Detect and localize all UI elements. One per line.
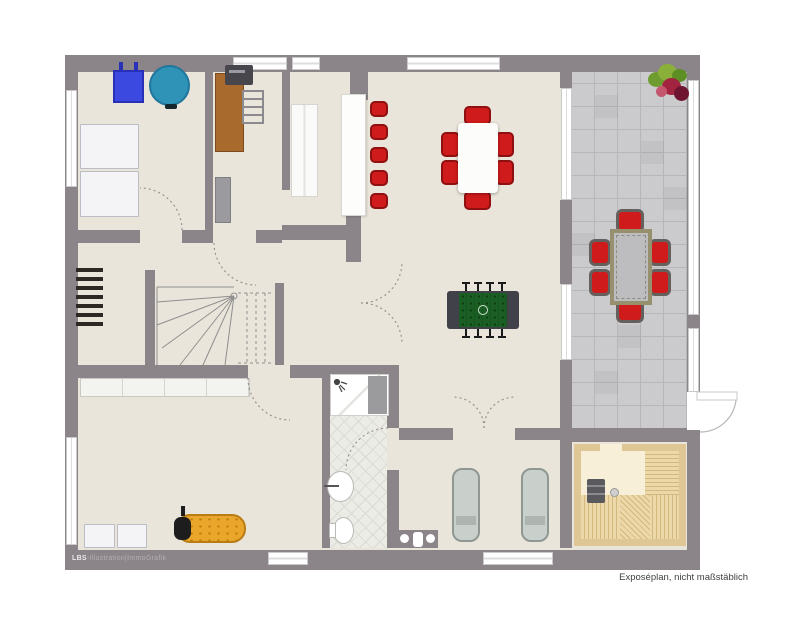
bar-stool — [370, 193, 388, 209]
patio-chair — [649, 269, 671, 296]
patio-chair — [649, 239, 671, 266]
wall — [560, 200, 572, 284]
kitchen-counter — [291, 104, 318, 197]
wall — [515, 428, 560, 440]
terrace-tile-dark — [595, 95, 618, 118]
wall — [322, 365, 330, 548]
sauna-door-gap — [600, 444, 622, 451]
storage-box — [80, 124, 139, 169]
wall — [145, 270, 155, 365]
window — [407, 57, 500, 70]
bar-stool — [370, 147, 388, 163]
window — [66, 437, 77, 545]
lounger-band — [525, 516, 545, 525]
credit-text: -Illustration|ImmoGrafik — [87, 555, 166, 562]
sauna-bucket — [610, 488, 619, 497]
dining-table — [458, 123, 498, 193]
wall — [256, 230, 282, 243]
lounger — [452, 468, 480, 542]
massage-lounger-knob — [181, 506, 185, 516]
lounger — [521, 468, 549, 542]
wall — [65, 230, 140, 243]
wall — [560, 360, 572, 548]
patio-table-inlay — [616, 235, 646, 299]
sink — [327, 471, 354, 502]
wall — [560, 428, 700, 442]
storage-box — [117, 524, 147, 548]
gym-ball — [149, 65, 190, 106]
window — [561, 88, 572, 200]
storage-box — [80, 171, 139, 217]
printer — [225, 65, 253, 85]
wall — [282, 72, 290, 190]
fixture-dot — [400, 534, 409, 543]
bar-stool — [370, 170, 388, 186]
window — [688, 80, 699, 315]
floor-plan-page: LBS-Illustration|ImmoGrafik Exposéplan, … — [0, 0, 794, 630]
window — [483, 552, 553, 565]
printer-detail — [229, 70, 245, 73]
terrace-tile-dark — [664, 187, 687, 210]
wall — [560, 72, 572, 88]
patio-chair — [589, 239, 611, 266]
wall — [282, 225, 346, 240]
plant-flower — [674, 86, 689, 101]
exercise-box — [113, 70, 144, 103]
plant-flower — [656, 86, 667, 97]
wall — [275, 283, 284, 365]
terrace-tile-dark — [641, 141, 664, 164]
window — [688, 328, 699, 392]
wall — [182, 230, 213, 243]
sideboard — [80, 378, 250, 397]
disclaimer-caption: Exposéplan, nicht maßstäblich — [518, 572, 748, 583]
window — [66, 90, 77, 187]
shower-glass-panel — [368, 376, 387, 414]
exercise-box-post — [134, 62, 138, 71]
massage-lounger-headrest — [174, 517, 191, 540]
cabinet — [215, 177, 231, 223]
credit-caption: LBS-Illustration|ImmoGrafik — [72, 555, 166, 562]
toilet-tank — [329, 523, 336, 538]
lounger-band — [456, 516, 476, 525]
terrace-door-window — [561, 284, 572, 360]
bar-counter — [341, 94, 366, 216]
wine-rack — [76, 268, 103, 331]
terrace-tile-dark — [618, 325, 641, 348]
wall — [205, 72, 213, 243]
gym-ball-base — [165, 104, 177, 109]
storage-box — [84, 524, 115, 548]
window — [292, 57, 320, 70]
credit-brand: LBS — [72, 555, 87, 562]
fixture-panel — [413, 532, 423, 547]
sauna-bench-corner — [620, 495, 650, 539]
door-opening — [687, 392, 700, 430]
terrace-tile-dark — [595, 371, 618, 394]
patio-chair — [589, 269, 611, 296]
fixture-dot — [426, 534, 435, 543]
sauna-heater — [587, 479, 605, 503]
toilet — [333, 517, 354, 544]
bar-stool — [370, 101, 388, 117]
foosball-center-circle — [478, 305, 488, 315]
rack-chair — [242, 90, 264, 124]
exercise-box-post — [119, 62, 123, 71]
flower-pot — [648, 64, 692, 106]
dining-chair — [464, 191, 491, 210]
wall — [399, 428, 453, 440]
exterior-door — [697, 392, 737, 432]
wall — [65, 365, 248, 378]
window — [268, 552, 308, 565]
bar-stool — [370, 124, 388, 140]
